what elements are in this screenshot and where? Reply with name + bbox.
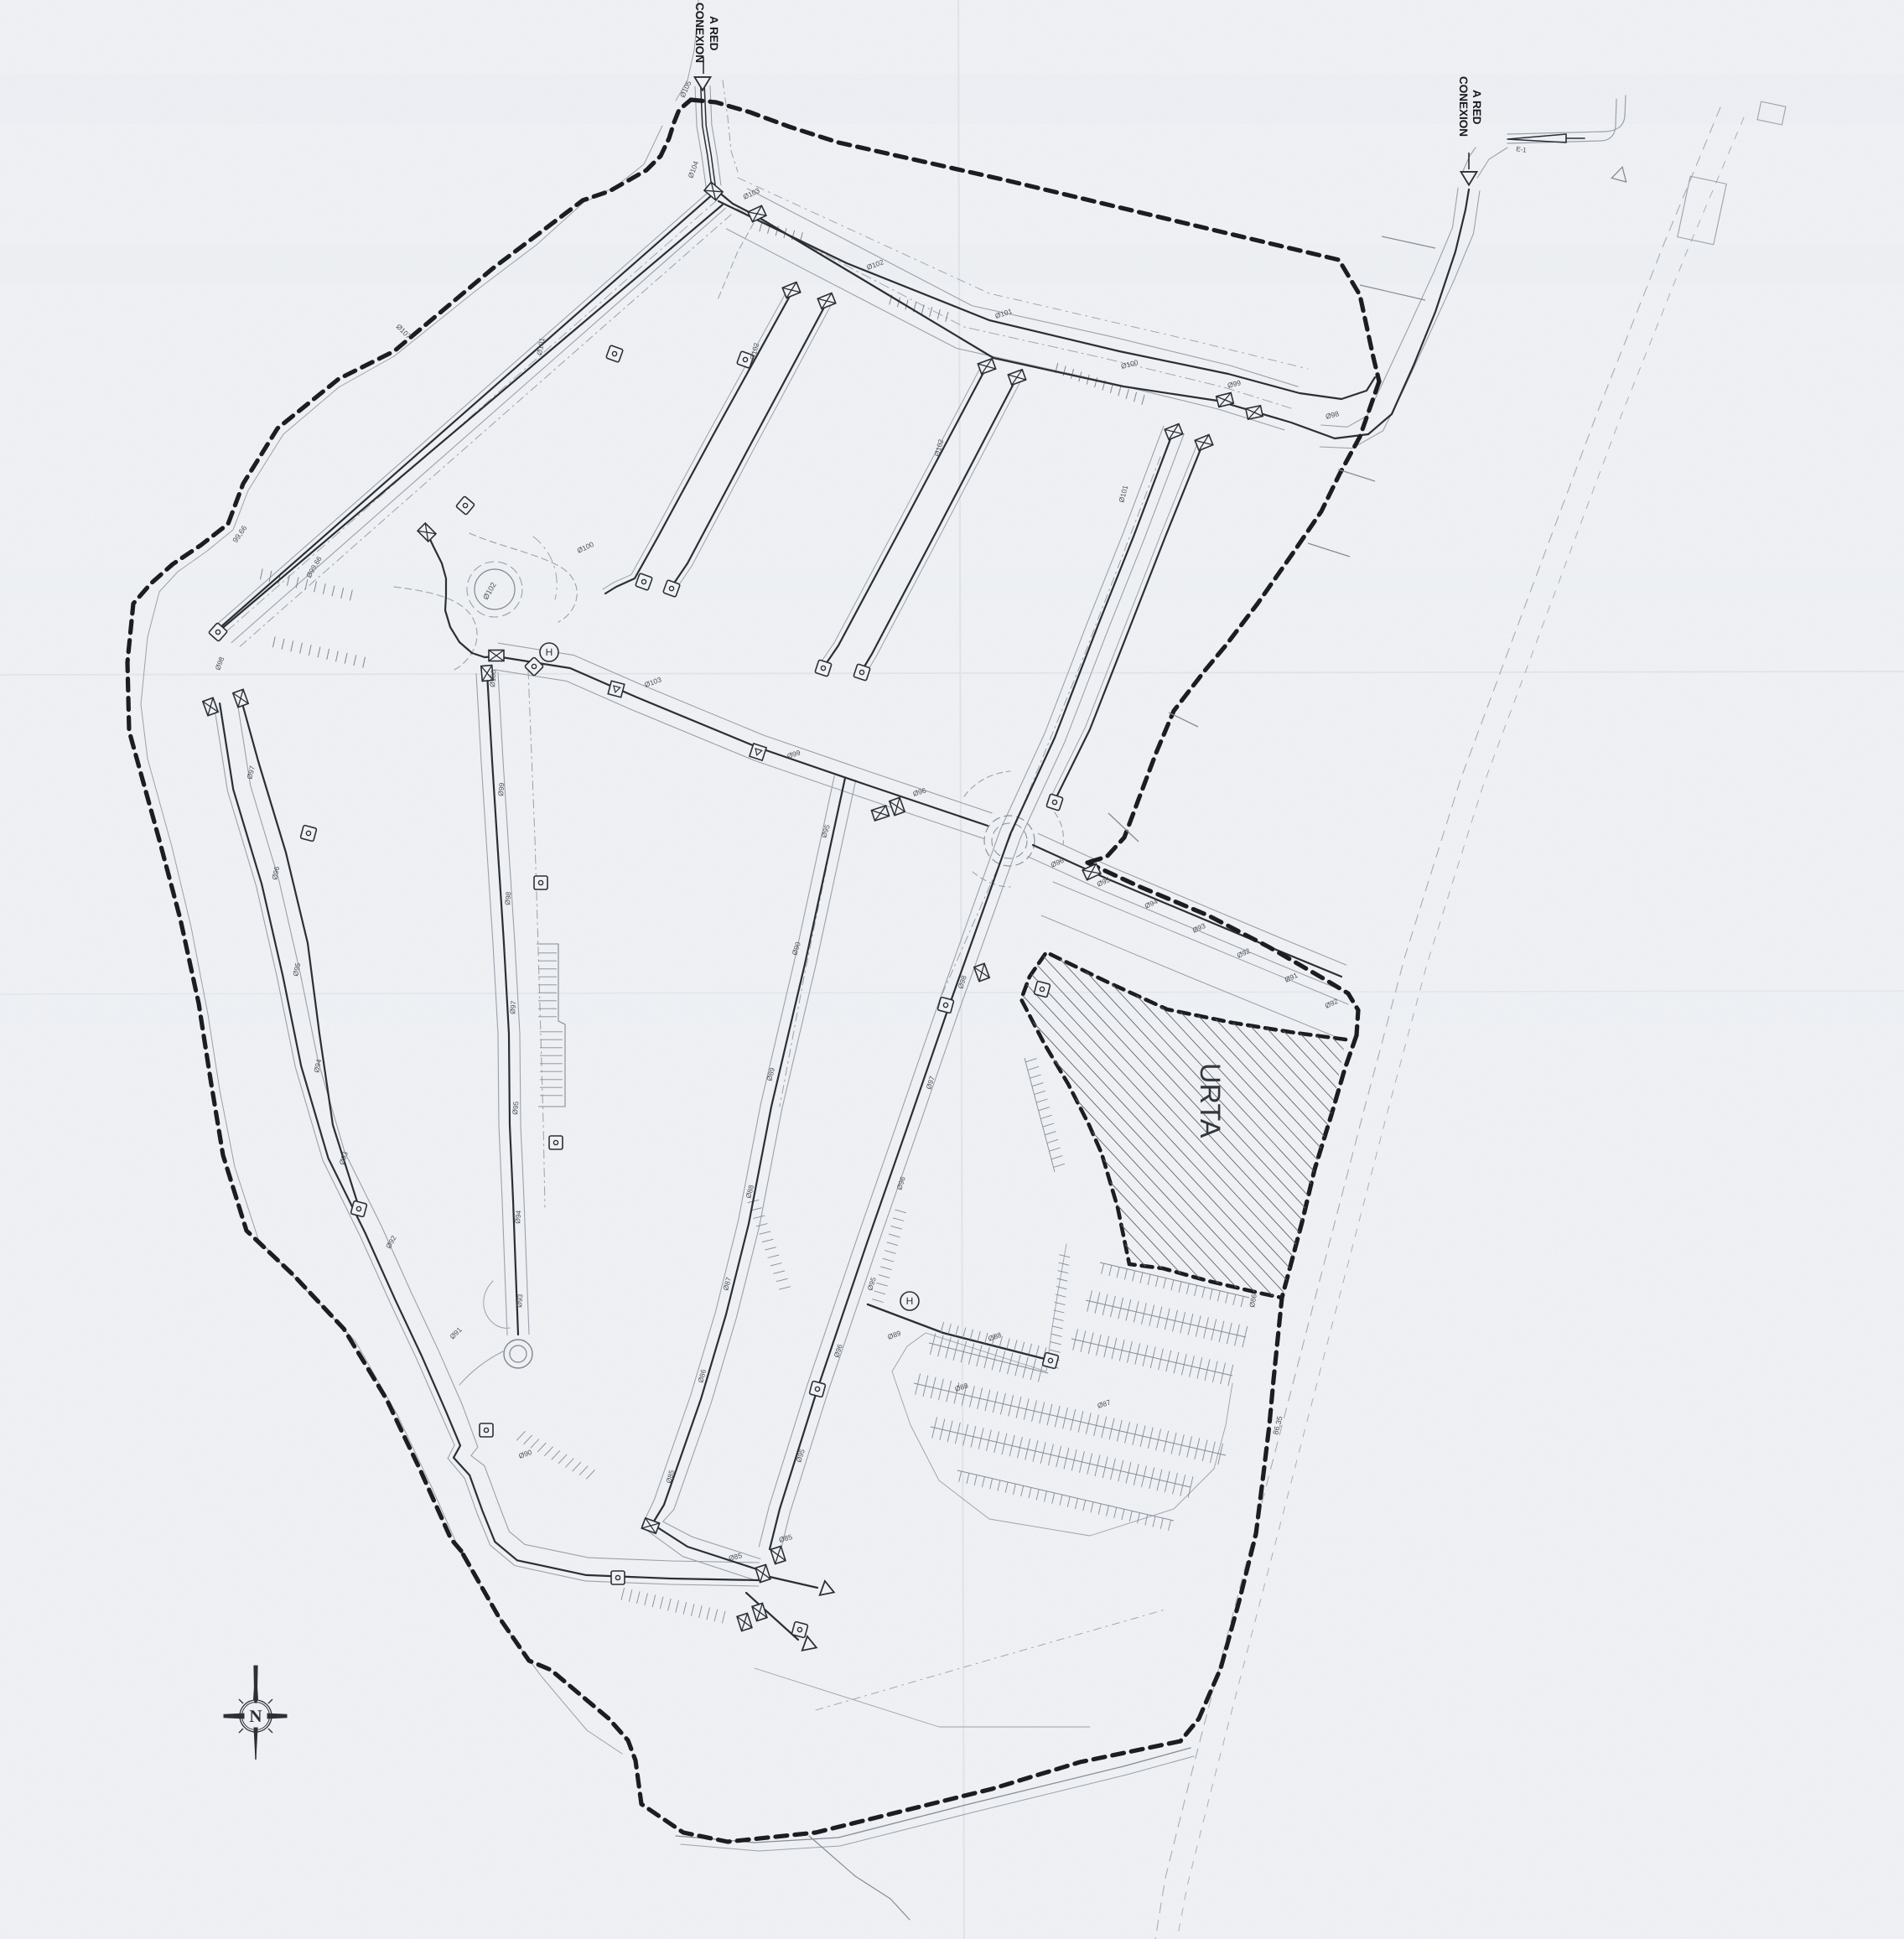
svg-text:E-1: E-1 (1516, 145, 1528, 154)
svg-text:URTA: URTA (1194, 1063, 1226, 1138)
svg-text:Ø97: Ø97 (508, 1000, 517, 1014)
svg-text:CONEXION: CONEXION (1457, 76, 1470, 137)
svg-text:Ø95: Ø95 (511, 1101, 520, 1115)
svg-text:A RED: A RED (708, 16, 720, 51)
svg-text:H: H (906, 1295, 914, 1307)
svg-text:Ø100: Ø100 (488, 669, 498, 687)
svg-text:Ø99: Ø99 (496, 782, 506, 796)
svg-text:CONEXION: CONEXION (693, 3, 706, 63)
svg-text:Ø98: Ø98 (503, 891, 512, 905)
svg-text:A RED: A RED (1471, 90, 1483, 125)
svg-text:N: N (249, 1706, 262, 1726)
svg-text:Ø93: Ø93 (515, 1294, 524, 1308)
svg-text:Ø94: Ø94 (513, 1210, 522, 1224)
svg-text:H: H (546, 646, 553, 658)
